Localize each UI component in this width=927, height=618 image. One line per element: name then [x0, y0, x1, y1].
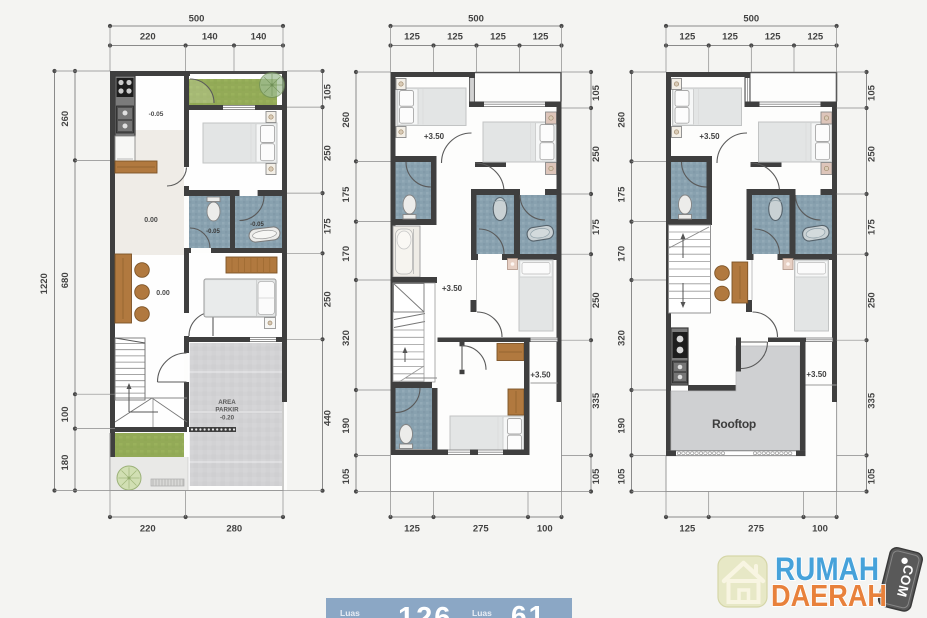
svg-text:500: 500	[189, 14, 205, 25]
svg-text:500: 500	[468, 14, 484, 25]
svg-text:125: 125	[765, 32, 782, 43]
svg-text:500: 500	[743, 14, 759, 25]
svg-text:Luas: Luas	[340, 608, 360, 618]
svg-text:125: 125	[404, 32, 421, 43]
svg-text:105: 105	[591, 468, 602, 485]
svg-text:175: 175	[617, 186, 628, 203]
svg-text:260: 260	[341, 112, 352, 128]
svg-text:126: 126	[398, 602, 452, 618]
svg-text:-0.05: -0.05	[250, 222, 264, 228]
svg-text:+3.50: +3.50	[424, 132, 445, 141]
svg-text:170: 170	[617, 246, 628, 262]
svg-text:-0.05: -0.05	[206, 229, 220, 235]
svg-text:280: 280	[226, 524, 242, 535]
svg-text:100: 100	[60, 406, 71, 422]
svg-text:AREA: AREA	[218, 399, 236, 406]
svg-text:1220: 1220	[39, 273, 50, 294]
svg-text:100: 100	[812, 524, 828, 535]
svg-text:105: 105	[617, 468, 628, 485]
svg-text:260: 260	[60, 111, 71, 127]
svg-text:105: 105	[341, 468, 352, 485]
svg-text:+3.50: +3.50	[806, 370, 827, 379]
svg-text:175: 175	[341, 186, 352, 203]
svg-text:220: 220	[140, 32, 156, 43]
svg-text:260: 260	[617, 112, 628, 128]
svg-text:250: 250	[867, 292, 878, 308]
svg-text:440: 440	[323, 410, 334, 426]
svg-text:125: 125	[404, 524, 421, 535]
svg-text:250: 250	[323, 145, 334, 161]
svg-text:125: 125	[533, 32, 550, 43]
svg-text:Rooftop: Rooftop	[712, 417, 756, 431]
svg-text:100: 100	[537, 524, 553, 535]
svg-text:DAERAH: DAERAH	[771, 578, 887, 613]
svg-text:0.00: 0.00	[156, 290, 170, 297]
svg-text:140: 140	[202, 32, 218, 43]
svg-text:125: 125	[679, 524, 696, 535]
svg-text:+3.50: +3.50	[530, 371, 551, 380]
svg-text:61: 61	[511, 600, 546, 618]
svg-text:125: 125	[490, 32, 507, 43]
svg-text:105: 105	[867, 468, 878, 485]
svg-text:335: 335	[867, 392, 878, 409]
svg-text:+3.50: +3.50	[699, 132, 720, 141]
svg-text:105: 105	[867, 84, 878, 101]
svg-text:180: 180	[60, 455, 71, 471]
svg-text:190: 190	[341, 418, 352, 434]
svg-text:170: 170	[341, 246, 352, 262]
svg-text:250: 250	[591, 292, 602, 308]
svg-text:175: 175	[867, 218, 878, 235]
svg-text:250: 250	[591, 146, 602, 162]
svg-text:250: 250	[323, 291, 334, 307]
svg-text:Luas: Luas	[472, 608, 492, 618]
svg-text:0.00: 0.00	[144, 217, 158, 224]
svg-text:125: 125	[807, 32, 824, 43]
svg-text:140: 140	[251, 32, 267, 43]
svg-text:105: 105	[591, 84, 602, 101]
svg-text:220: 220	[140, 524, 156, 535]
svg-text:190: 190	[617, 418, 628, 434]
svg-text:-0.05: -0.05	[149, 111, 164, 118]
svg-text:175: 175	[323, 218, 334, 235]
svg-text:275: 275	[473, 524, 490, 535]
svg-text:335: 335	[591, 392, 602, 409]
svg-text:320: 320	[341, 330, 352, 346]
svg-text:250: 250	[867, 146, 878, 162]
svg-text:680: 680	[60, 272, 71, 288]
svg-text:125: 125	[722, 32, 739, 43]
svg-text:-0.20: -0.20	[220, 415, 235, 422]
svg-text:175: 175	[591, 218, 602, 235]
svg-text:275: 275	[748, 524, 765, 535]
svg-text:105: 105	[323, 83, 334, 100]
svg-text:125: 125	[447, 32, 464, 43]
svg-text:320: 320	[617, 330, 628, 346]
svg-text:PARKIR: PARKIR	[215, 407, 239, 414]
svg-text:125: 125	[679, 32, 696, 43]
svg-text:+3.50: +3.50	[442, 284, 463, 293]
